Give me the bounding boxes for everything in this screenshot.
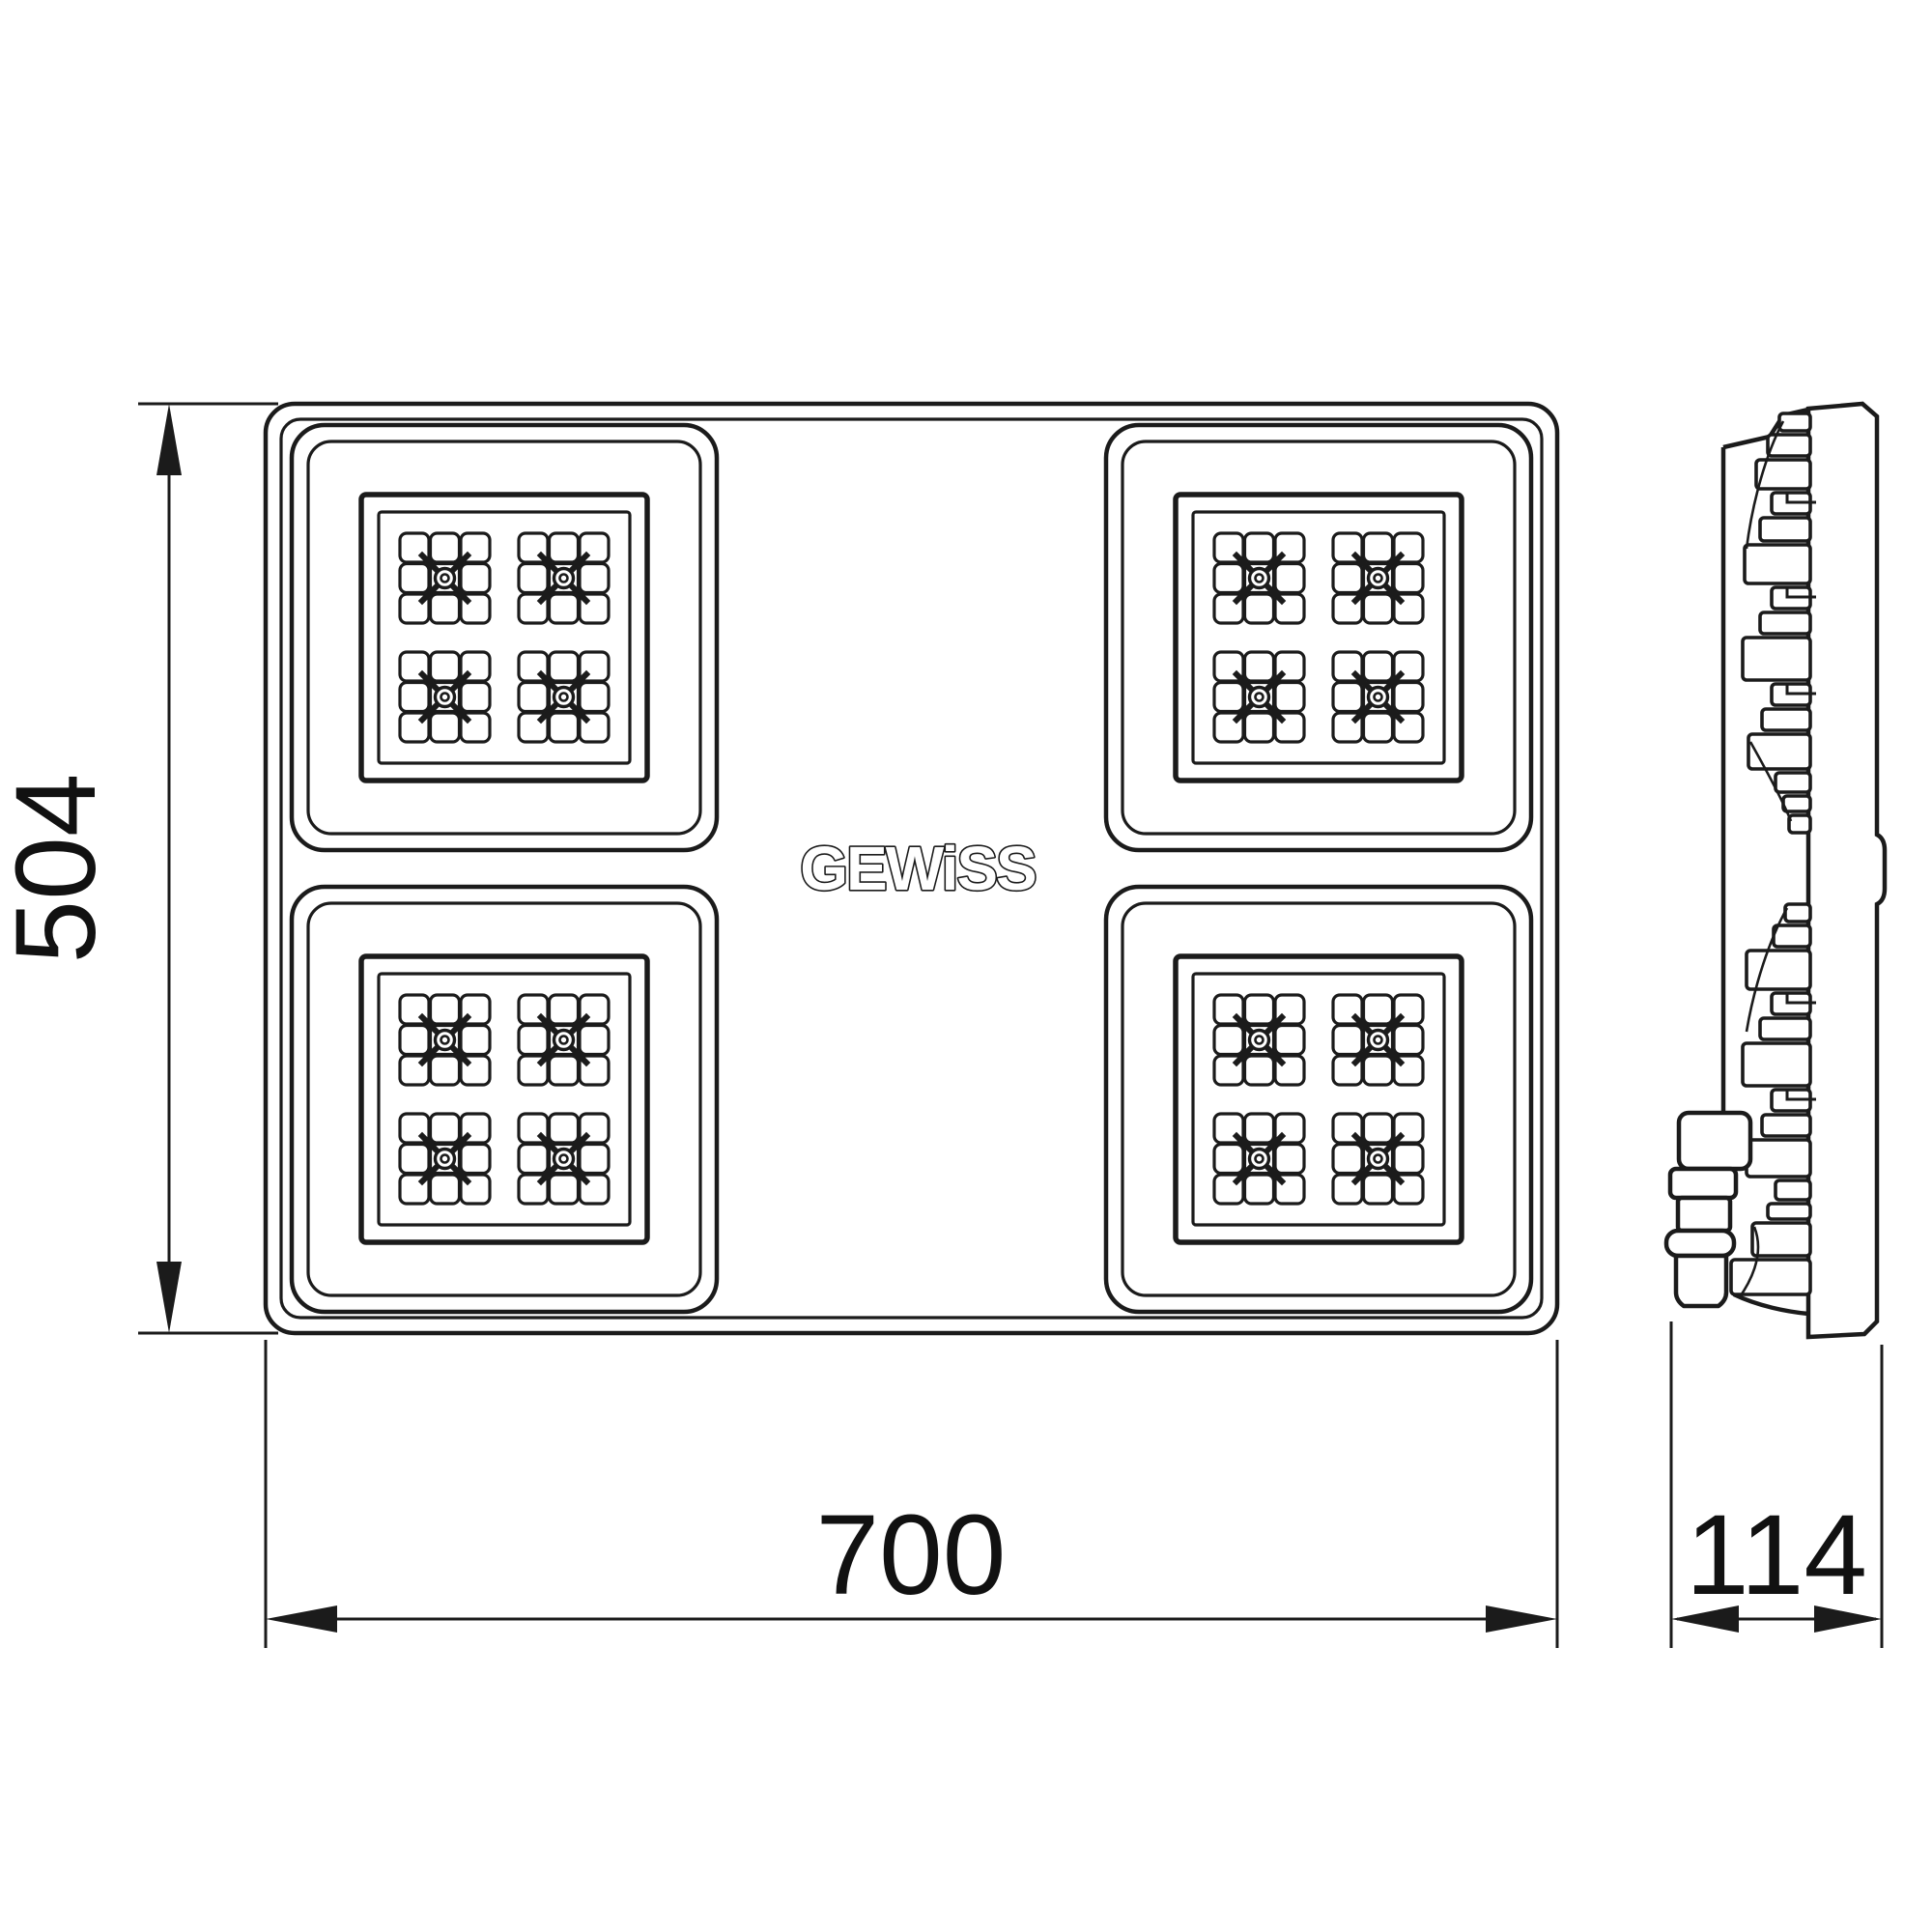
side-front-plate <box>1808 404 1885 1337</box>
heatsink-fin <box>1745 545 1810 583</box>
heatsink-fin <box>1768 1204 1810 1219</box>
side-view <box>1666 404 1885 1337</box>
heatsink-fin <box>1776 773 1810 792</box>
heatsink-fin <box>1762 709 1810 730</box>
led-module-bottom-right <box>1106 887 1531 1312</box>
gewiss-logo: GEWiSS <box>800 834 1036 903</box>
heatsink-fin <box>1785 904 1810 922</box>
front-view: GEWiSS <box>266 404 1557 1333</box>
heatsink-fin <box>1762 1115 1810 1136</box>
heatsink-fin <box>1743 1043 1810 1086</box>
dimension-depth: 114 <box>1671 1321 1882 1648</box>
heatsink-fin <box>1776 1180 1810 1200</box>
technical-drawing-canvas: GEWiSS <box>0 0 1932 1932</box>
dimension-height-label: 504 <box>0 774 120 964</box>
heatsink-fin <box>1789 815 1810 833</box>
arrow-up-icon <box>156 404 182 475</box>
heatsink-fin <box>1731 1260 1810 1294</box>
arrow-down-icon <box>156 1262 182 1333</box>
arrow-right-icon <box>1486 1605 1557 1633</box>
heatsink-fin <box>1774 925 1810 947</box>
heatsink-fin <box>1752 1223 1810 1256</box>
heatsink-fin <box>1760 612 1810 634</box>
heatsink-fin <box>1747 1140 1810 1177</box>
arrow-left-icon <box>266 1605 337 1633</box>
dimension-width: 700 <box>266 1340 1557 1648</box>
dimension-height: 504 <box>0 404 278 1333</box>
heatsink-fin <box>1760 1018 1810 1039</box>
led-module-top-right <box>1106 425 1531 850</box>
heatsink-fin <box>1783 796 1810 811</box>
dimension-width-label: 700 <box>816 1492 1007 1619</box>
led-module-bottom-left <box>292 887 717 1312</box>
heatsink-fin <box>1760 518 1810 541</box>
led-module-top-left <box>292 425 717 850</box>
heatsink-fin <box>1748 734 1810 769</box>
drawing-page: GEWiSS <box>0 0 1932 1932</box>
dimension-depth-label: 114 <box>1686 1492 1867 1619</box>
heatsink-fin <box>1743 638 1810 680</box>
